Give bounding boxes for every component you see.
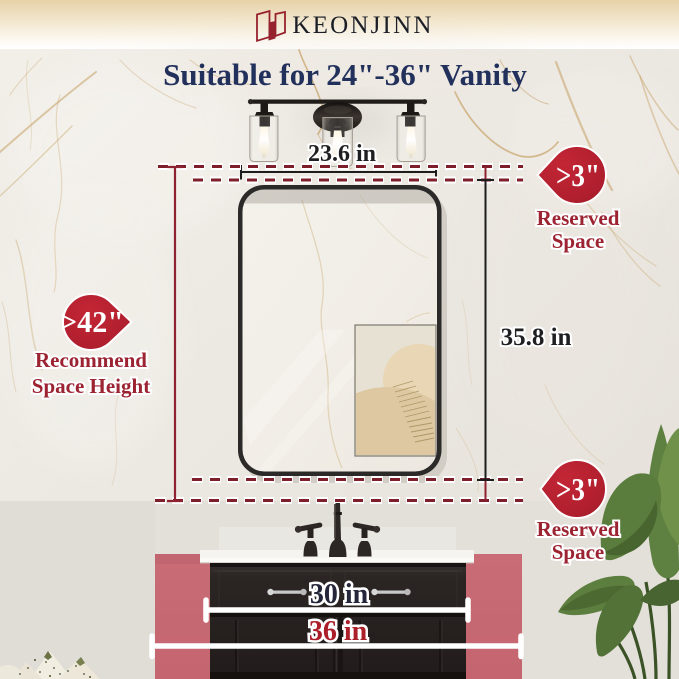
svg-text:36 in: 36 in xyxy=(309,616,368,647)
svg-text:Suitable for 24"-36" Vanity: Suitable for 24"-36" Vanity xyxy=(163,57,527,92)
svg-text:Space: Space xyxy=(552,229,605,253)
svg-text:30 in: 30 in xyxy=(310,579,369,610)
svg-text:Reserved: Reserved xyxy=(537,517,620,541)
svg-text:>42": >42" xyxy=(60,304,124,339)
svg-text:Recommend: Recommend xyxy=(35,348,147,372)
svg-text:>3": >3" xyxy=(556,157,600,193)
svg-text:Space: Space xyxy=(552,540,605,564)
svg-text:Space Height: Space Height xyxy=(32,374,150,398)
svg-text:Reserved: Reserved xyxy=(537,206,620,230)
svg-text:>3": >3" xyxy=(556,471,600,507)
svg-text:35.8 in: 35.8 in xyxy=(501,324,572,351)
svg-text:KEONJINN: KEONJINN xyxy=(292,12,433,39)
